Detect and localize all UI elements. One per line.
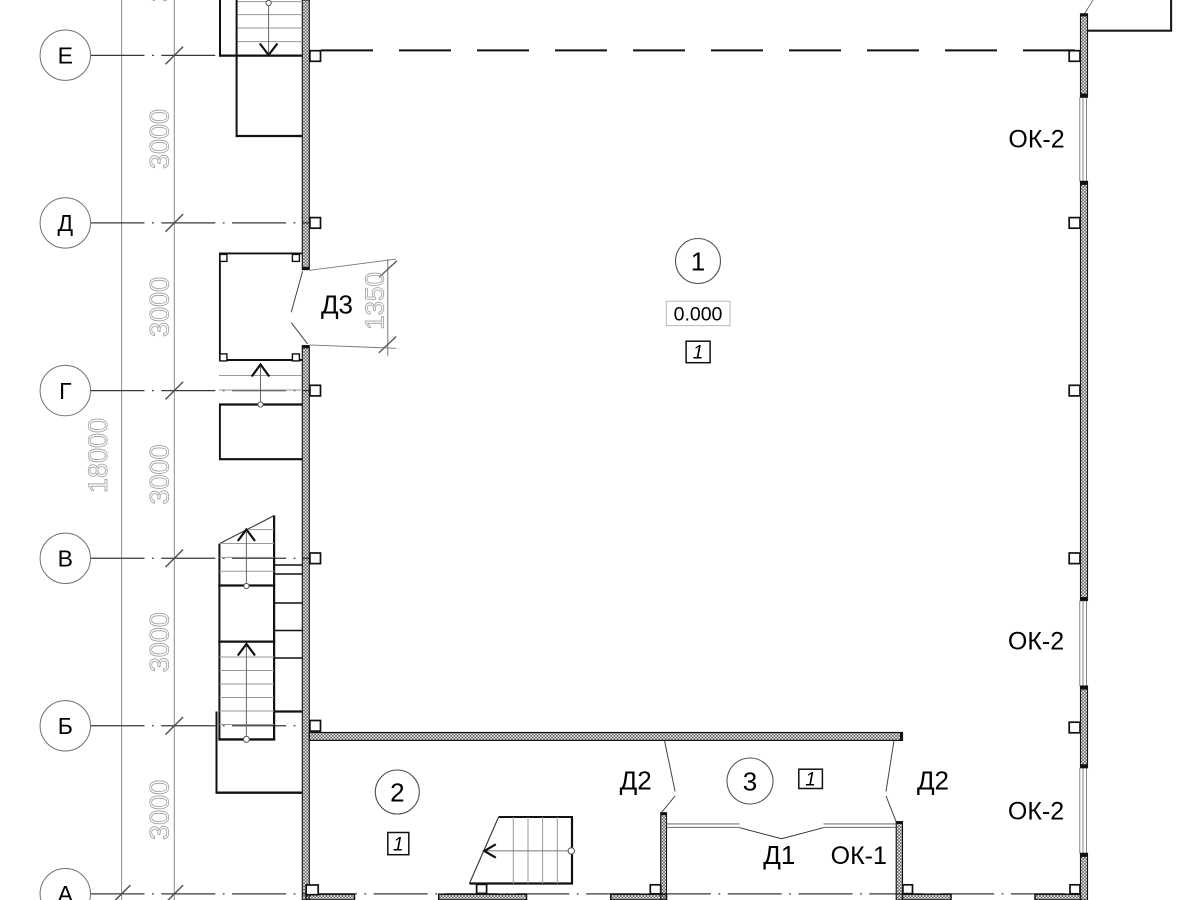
svg-text:3000: 3000 [145,277,175,337]
svg-text:1350: 1350 [360,272,390,330]
svg-text:ОК-1: ОК-1 [831,842,887,870]
svg-text:Д: Д [58,210,74,236]
svg-text:ОК-2: ОК-2 [1008,628,1064,656]
svg-text:Б: Б [58,713,73,739]
svg-text:В: В [58,546,73,572]
svg-text:Д2: Д2 [917,766,949,796]
svg-text:Г: Г [59,378,72,404]
svg-text:Д3: Д3 [321,290,353,320]
svg-text:18000: 18000 [83,418,113,493]
svg-text:3000: 3000 [145,780,175,840]
svg-text:3000: 3000 [145,444,175,504]
svg-text:1: 1 [805,770,816,791]
svg-text:3000: 3000 [145,0,175,2]
svg-text:Д2: Д2 [620,766,652,796]
svg-text:3000: 3000 [145,109,175,169]
svg-text:А: А [58,881,74,900]
svg-text:0.000: 0.000 [674,304,723,326]
svg-text:ОК-2: ОК-2 [1008,798,1064,826]
svg-text:1: 1 [691,246,705,276]
svg-text:Е: Е [58,42,73,68]
svg-text:ОК-2: ОК-2 [1008,126,1064,154]
svg-text:Д1: Д1 [763,840,795,870]
svg-text:3000: 3000 [145,612,175,672]
svg-text:3: 3 [743,766,757,796]
svg-text:1: 1 [393,835,404,856]
svg-text:1: 1 [693,343,704,364]
svg-text:2: 2 [390,777,404,807]
